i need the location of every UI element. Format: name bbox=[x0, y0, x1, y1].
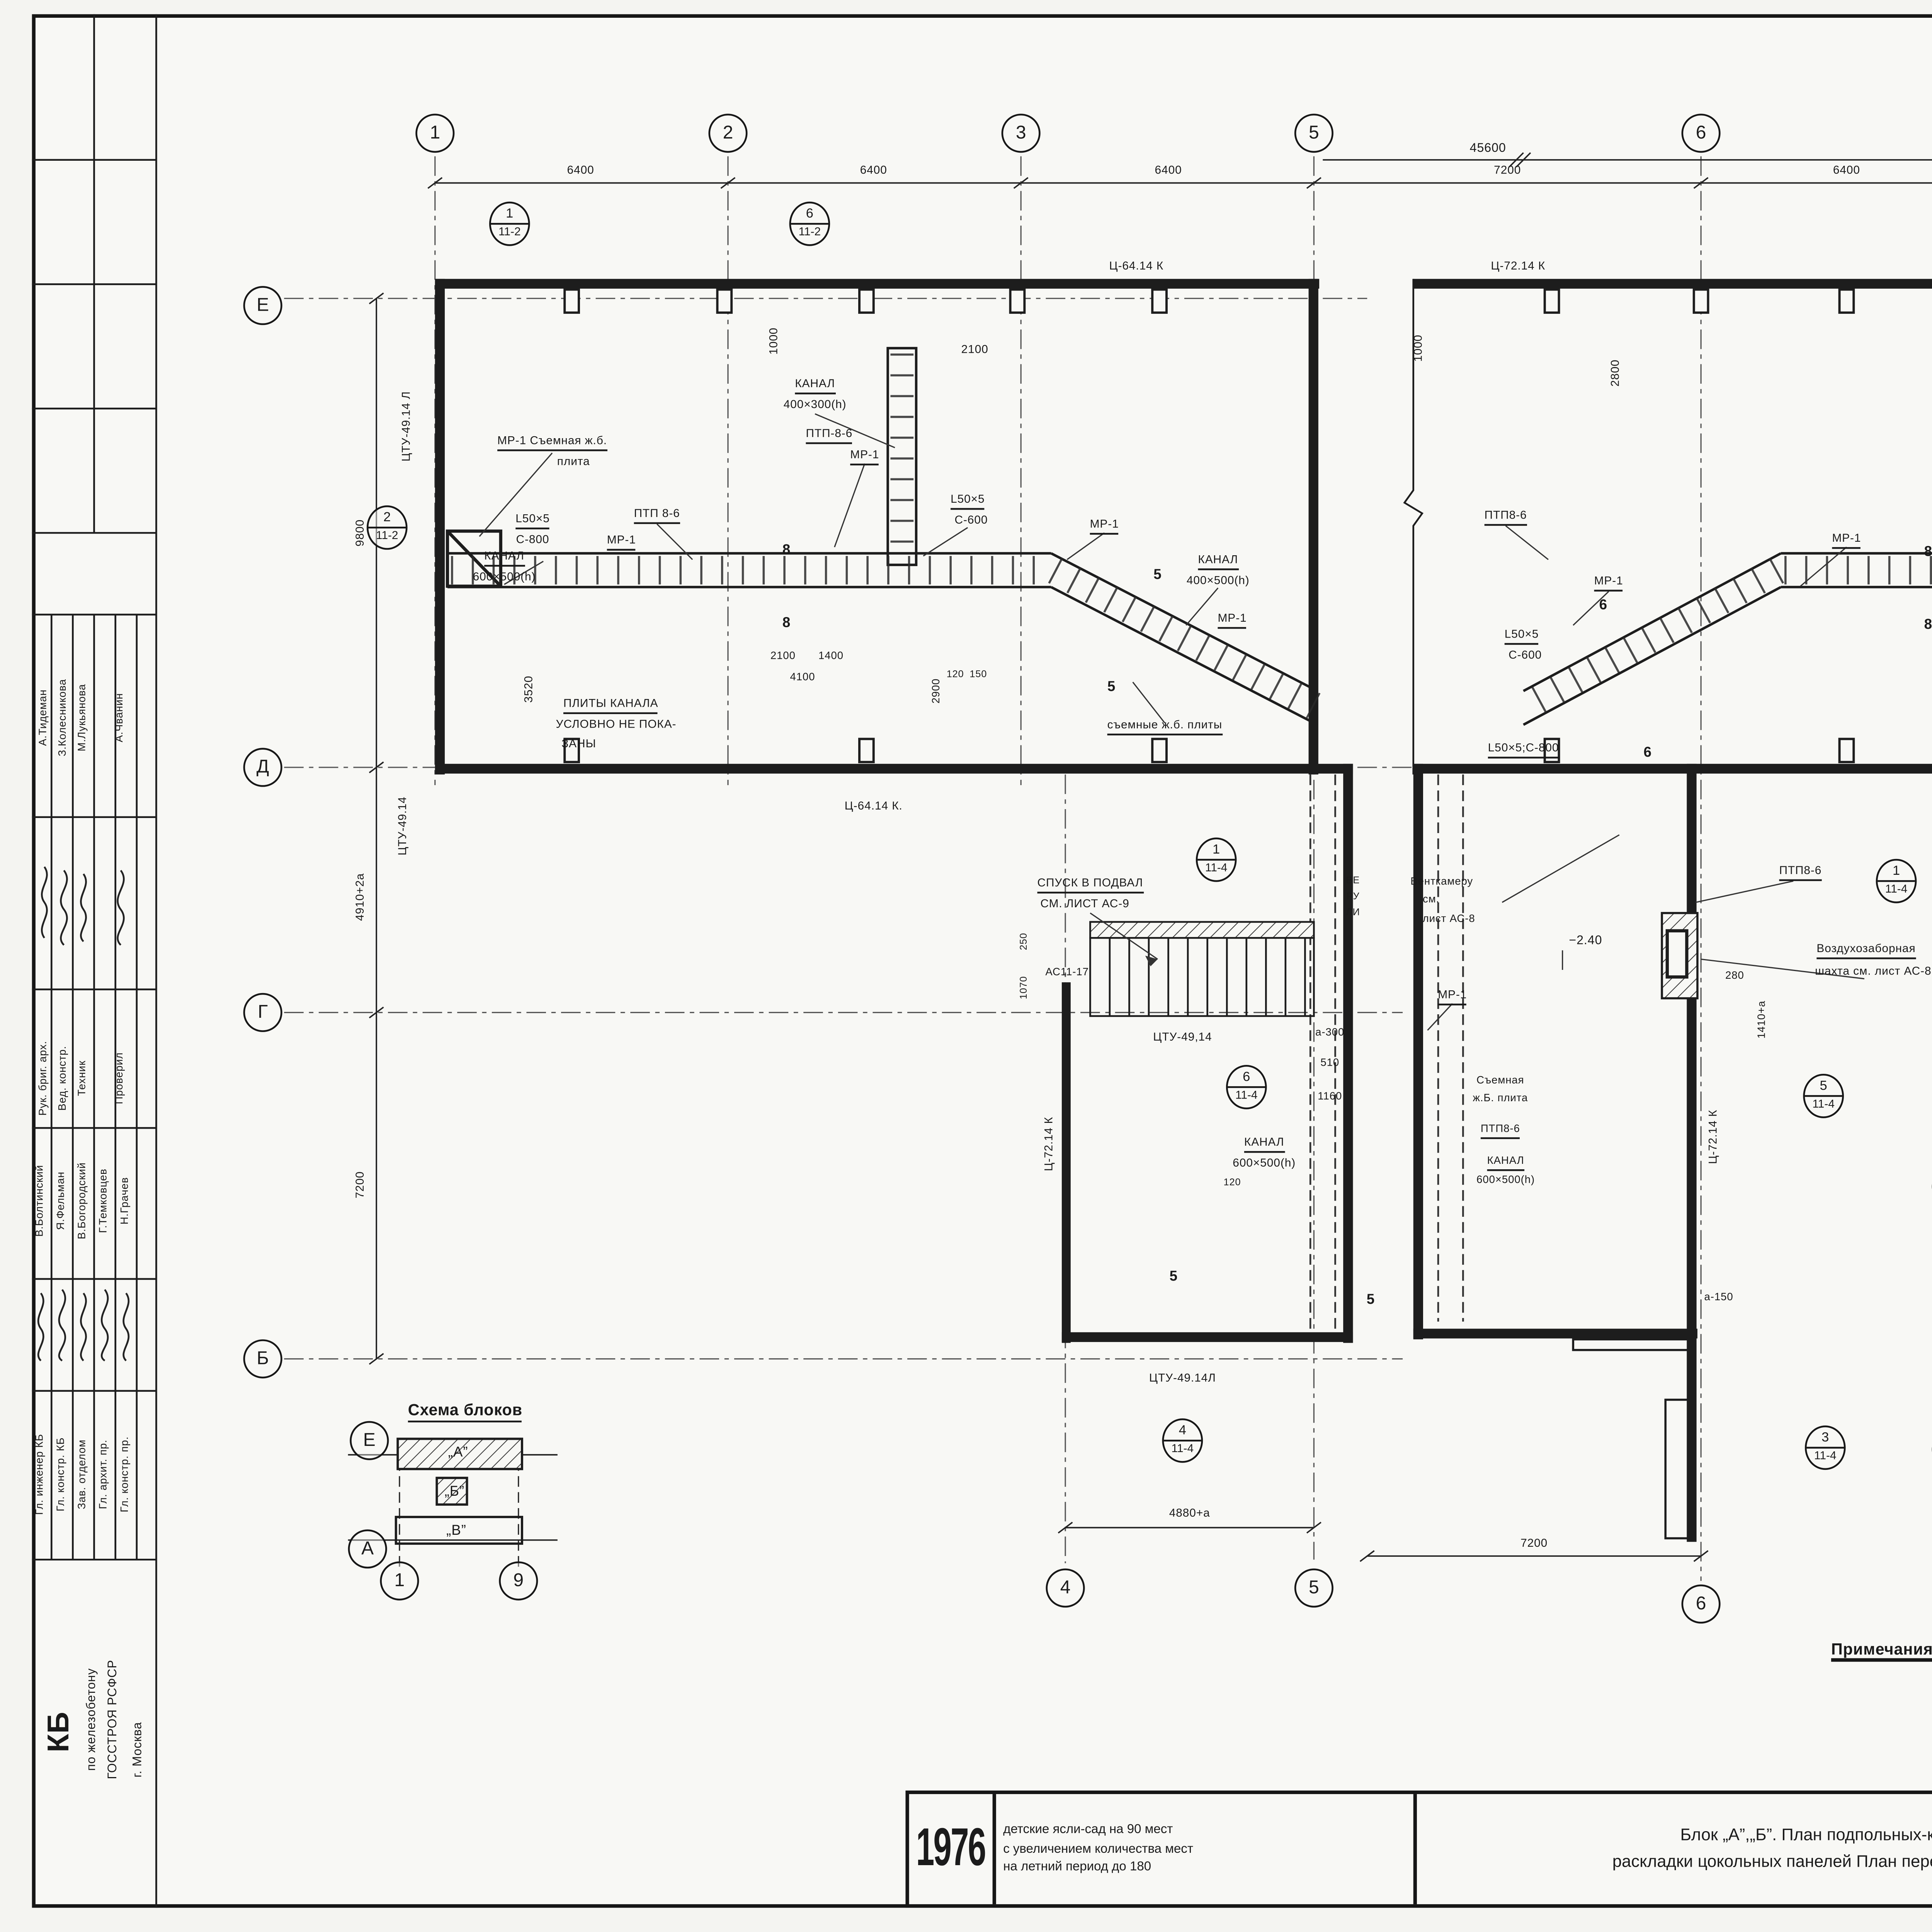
object-line-1: детские ясли-сад на 90 мест bbox=[1003, 1821, 1173, 1840]
notes-heading: Примечания bbox=[1831, 1642, 1932, 1662]
title-block: 1976 детские ясли-сад на 90 мест с увели… bbox=[906, 1791, 1932, 1908]
headings-layer: План перекрытия над подвалом Анкера Ø12А… bbox=[0, 0, 1932, 1932]
year-value: 1976 bbox=[916, 1819, 985, 1879]
title-line-2: раскладки цокольных панелей План перекры… bbox=[1612, 1849, 1932, 1876]
schema-block-a-label: „А” bbox=[448, 1446, 468, 1460]
schema-block-b-label: „Б” bbox=[445, 1485, 464, 1499]
drawing-canvas: МР-1 Съемная ж.б.плитаЦТУ-49.14 ЛЦТУ-49.… bbox=[0, 0, 1932, 1932]
object-line-3: на летний период до 180 bbox=[1003, 1859, 1151, 1877]
schema-block-v-label: „В” bbox=[446, 1524, 466, 1538]
object-cell: детские ясли-сад на 90 мест с увеличение… bbox=[993, 1794, 1413, 1904]
title-cell: Блок „А”,„Б”. План подпольных-каналов. П… bbox=[1413, 1794, 1932, 1904]
block-schema-heading: Схема блоков bbox=[408, 1403, 522, 1422]
title-line-1: Блок „А”,„Б”. План подпольных-каналов. П… bbox=[1680, 1822, 1932, 1849]
year-cell: 1976 bbox=[909, 1794, 993, 1904]
object-line-2: с увеличением количества мест bbox=[1003, 1840, 1193, 1859]
scanned-sheet: МР-1 Съемная ж.б.плитаЦТУ-49.14 ЛЦТУ-49.… bbox=[0, 0, 1932, 1932]
